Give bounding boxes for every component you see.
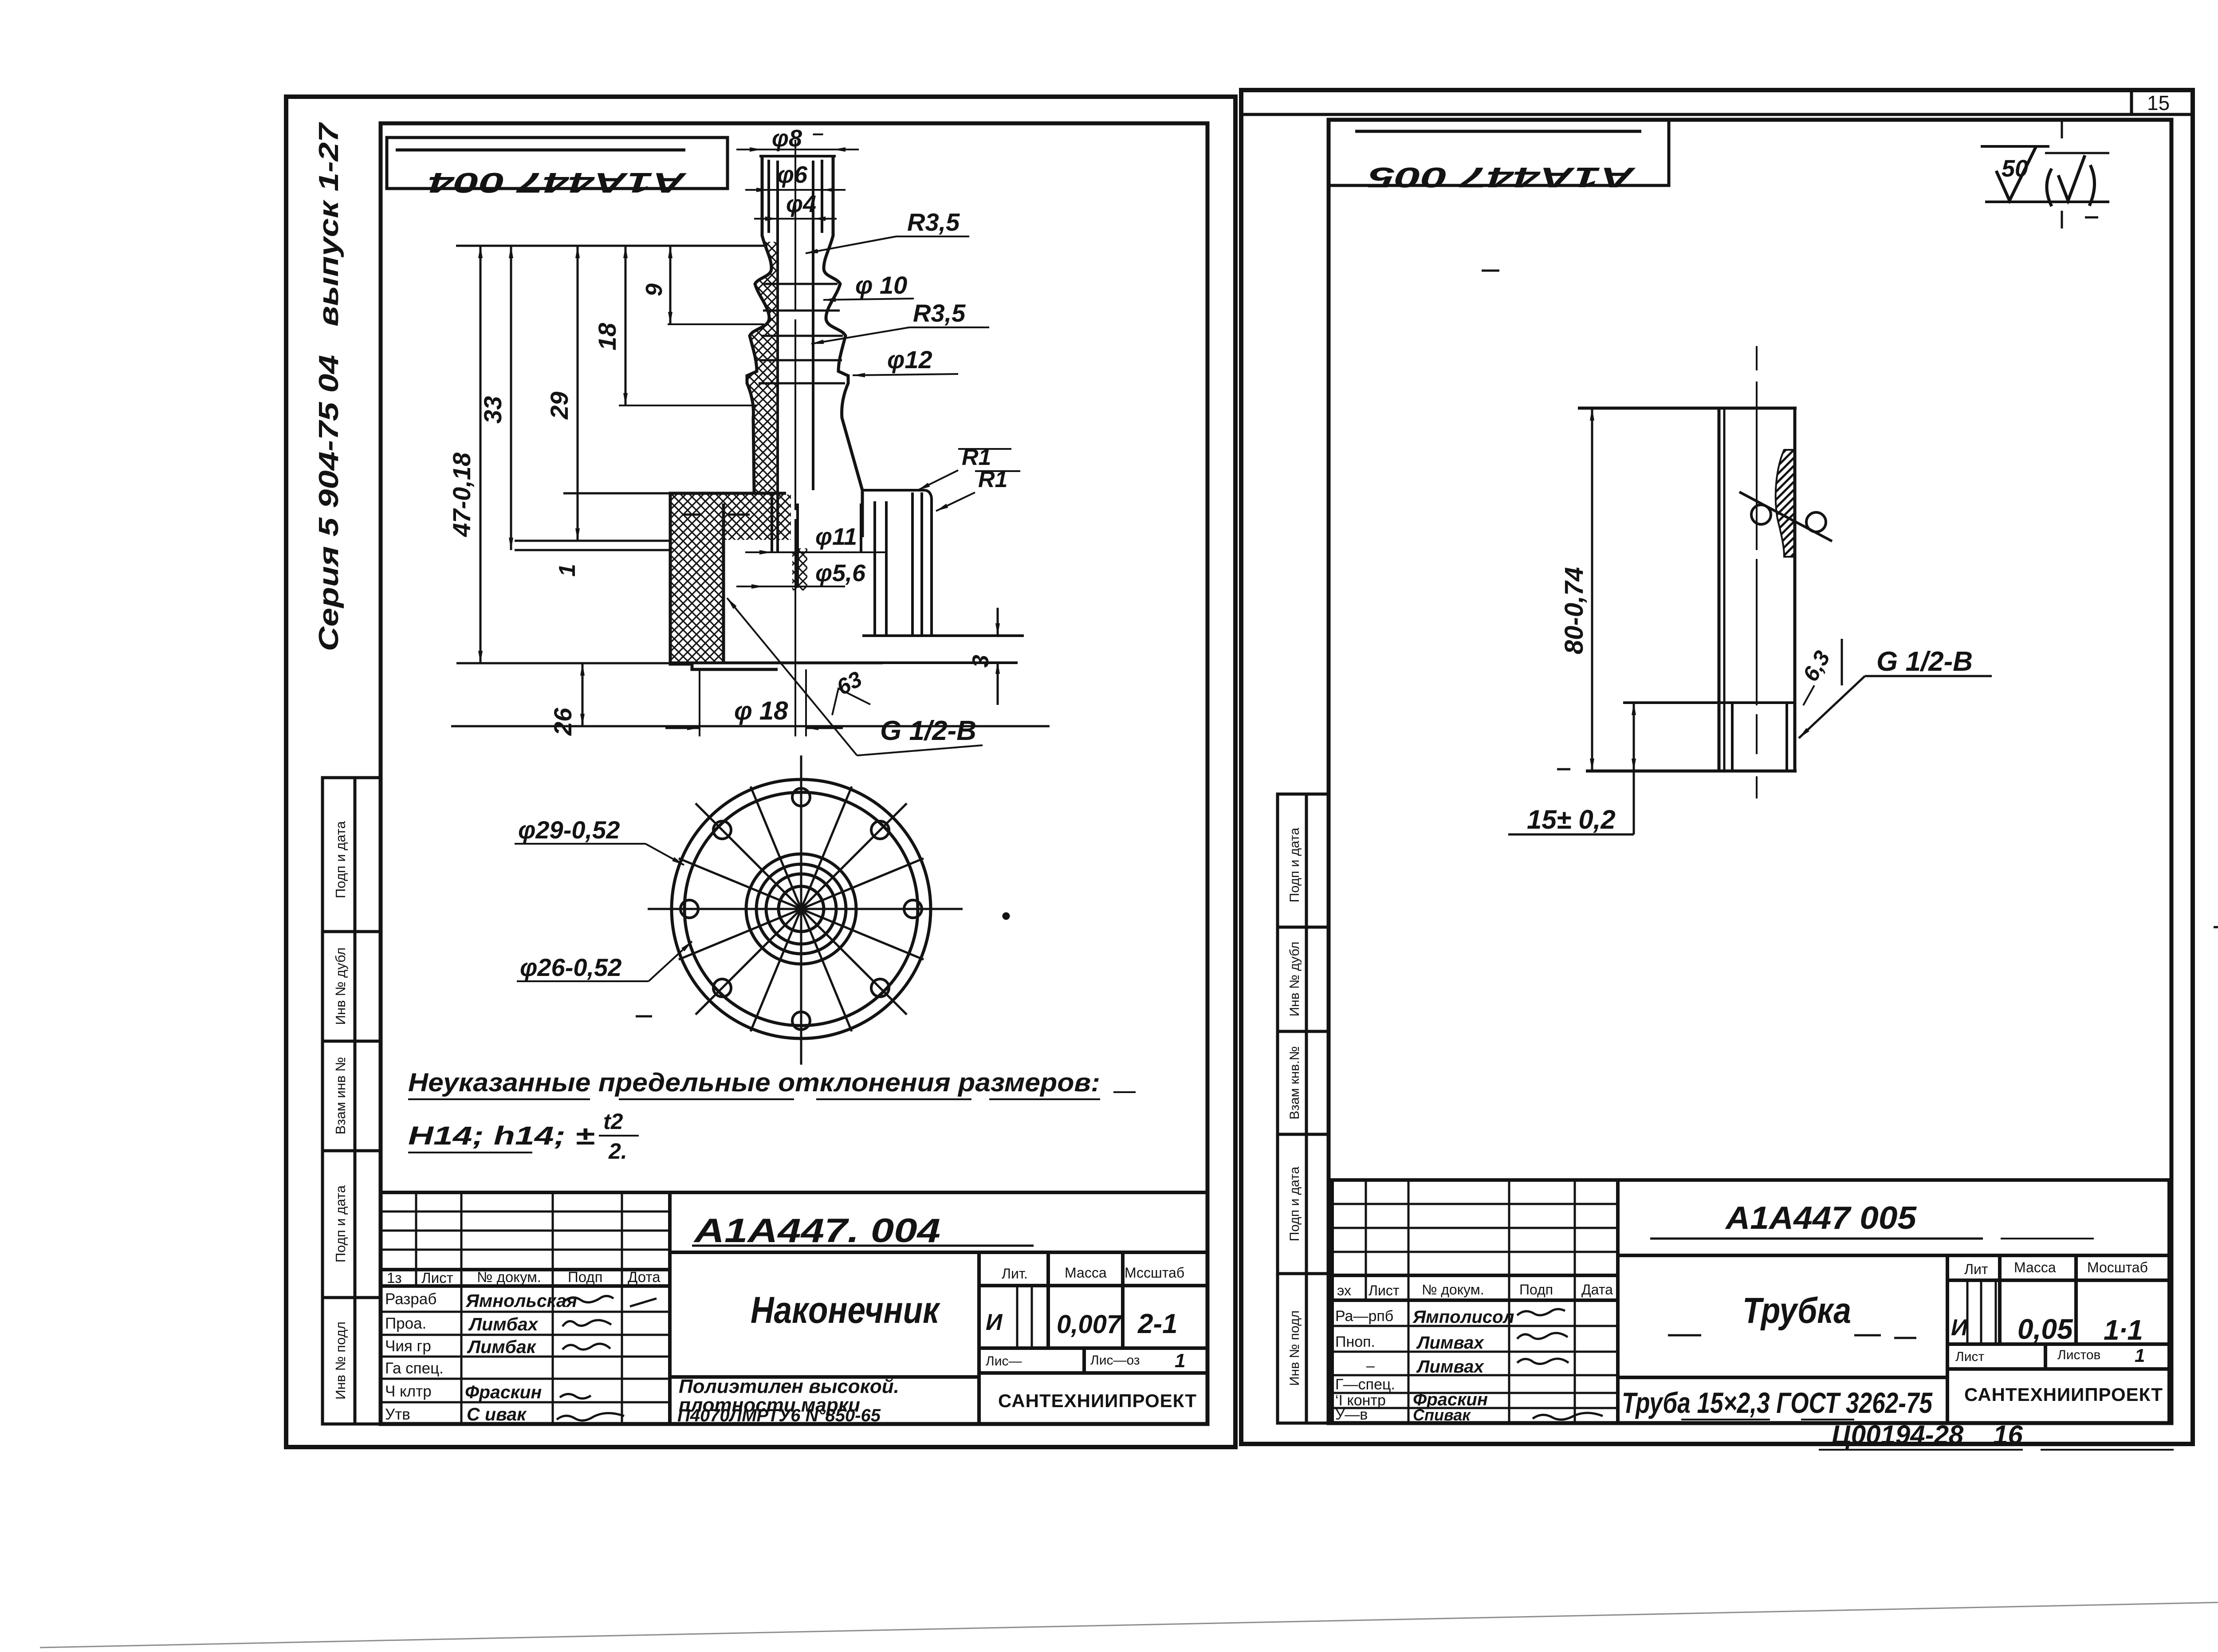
- svg-text:Фраскин: Фраскин: [465, 1382, 542, 1402]
- svg-text:Чия гр: Чия гр: [385, 1337, 431, 1355]
- svg-text:15: 15: [2147, 91, 2170, 114]
- svg-text:φ6: φ6: [777, 161, 808, 188]
- svg-text:15± 0,2: 15± 0,2: [1527, 805, 1616, 834]
- svg-text:Проа.: Проа.: [385, 1315, 426, 1332]
- svg-text:18: 18: [593, 323, 621, 350]
- svg-text:С ивак: С ивак: [467, 1404, 527, 1424]
- svg-text:Лит.: Лит.: [1002, 1266, 1028, 1282]
- svg-text:№ докум.: № докум.: [477, 1269, 541, 1285]
- svg-text:φ12: φ12: [887, 346, 932, 374]
- svg-text:Лис—оз: Лис—оз: [1090, 1353, 1140, 1368]
- svg-text:И: И: [986, 1310, 1003, 1335]
- svg-text:Лимвах: Лимвах: [1416, 1357, 1484, 1377]
- svg-text:Масса: Масса: [1065, 1265, 1107, 1281]
- svg-text:Лит: Лит: [1964, 1261, 1988, 1277]
- svg-text:φ 10: φ 10: [855, 271, 907, 299]
- svg-text:Подп: Подп: [568, 1269, 602, 1285]
- svg-text:0,05: 0,05: [2017, 1313, 2073, 1345]
- svg-text:Лист: Лист: [1955, 1349, 1984, 1364]
- svg-text:Подп и дата: Подп и дата: [1287, 1166, 1302, 1241]
- svg-text:эх: эх: [1337, 1282, 1351, 1298]
- svg-text:Разраб: Разраб: [385, 1290, 437, 1308]
- svg-text:1: 1: [1175, 1350, 1185, 1372]
- svg-text:Ц00194-28 16: Ц00194-28 16: [1832, 1420, 2023, 1450]
- svg-text:Лист: Лист: [421, 1270, 453, 1286]
- svg-text:A1A447. 004: A1A447. 004: [693, 1212, 940, 1250]
- svg-text:47-0,18: 47-0,18: [448, 452, 476, 537]
- svg-text:0,007: 0,007: [1057, 1310, 1122, 1339]
- svg-text:№ докум.: № докум.: [1422, 1282, 1484, 1298]
- svg-text:A1A447 004: A1A447 004: [429, 167, 687, 199]
- svg-text:1∙1: 1∙1: [2104, 1314, 2143, 1346]
- svg-text:Ямнольская: Ямнольская: [465, 1290, 577, 1311]
- svg-text:Мссштаб: Мссштаб: [1125, 1265, 1184, 1281]
- svg-text:Лимбах: Лимбах: [468, 1314, 539, 1334]
- svg-text:G 1/2-B: G 1/2-B: [880, 716, 976, 746]
- svg-text:Подп: Подп: [1519, 1282, 1553, 1298]
- svg-text:Г—спец.: Г—спец.: [1335, 1376, 1395, 1393]
- svg-text:2.: 2.: [608, 1139, 627, 1164]
- svg-text:И: И: [1951, 1315, 1968, 1341]
- svg-text:R3,5: R3,5: [907, 208, 960, 236]
- svg-text:t2: t2: [603, 1109, 623, 1134]
- svg-text:Утв: Утв: [385, 1406, 410, 1423]
- svg-text:Наконечник: Наконечник: [751, 1289, 940, 1331]
- svg-text:26: 26: [549, 708, 577, 736]
- svg-text:САНТЕХНИИПРОЕКТ: САНТЕХНИИПРОЕКТ: [1964, 1384, 2163, 1405]
- svg-text:Ч клтр: Ч клтр: [385, 1383, 432, 1400]
- svg-text:П4070ЛМРТУ6 N°850-65: П4070ЛМРТУ6 N°850-65: [677, 1406, 881, 1425]
- svg-text:G 1/2-B: G 1/2-B: [1876, 646, 1973, 677]
- svg-text:φ29-0,52: φ29-0,52: [518, 816, 620, 844]
- svg-text:R3,5: R3,5: [913, 299, 966, 327]
- svg-text:33: 33: [479, 396, 507, 424]
- svg-text:Труба 15×2,3 ГОСТ 3262-75: Труба 15×2,3 ГОСТ 3262-75: [1622, 1386, 1933, 1419]
- svg-text:80-0,74: 80-0,74: [1560, 567, 1589, 654]
- svg-text:Дата: Дата: [1581, 1282, 1613, 1298]
- svg-text:Га спец.: Га спец.: [385, 1360, 444, 1377]
- svg-text:φ 18: φ 18: [734, 696, 788, 725]
- svg-text:Подп и дата: Подп и дата: [1287, 827, 1302, 902]
- svg-text:Лимвах: Лимвах: [1416, 1333, 1484, 1353]
- svg-text:1: 1: [554, 564, 580, 577]
- svg-text:Листов: Листов: [2057, 1348, 2100, 1362]
- svg-text:Подп и дата: Подп и дата: [333, 1185, 348, 1263]
- svg-text:H14; h14; ±: H14; h14; ±: [408, 1121, 594, 1150]
- svg-text:Масса: Масса: [2014, 1259, 2056, 1275]
- svg-text:Трубка: Трубка: [1742, 1290, 1851, 1331]
- svg-text:Инв № дубл: Инв № дубл: [1287, 941, 1302, 1016]
- svg-text:Лис—: Лис—: [986, 1354, 1022, 1369]
- svg-text:φ5,6: φ5,6: [815, 560, 866, 586]
- svg-text:Мосштаб: Мосштаб: [2087, 1259, 2148, 1275]
- svg-text:Пноп.: Пноп.: [1335, 1333, 1375, 1350]
- svg-text:φ11: φ11: [815, 523, 857, 550]
- svg-text:Подп и дата: Подп и дата: [333, 821, 348, 898]
- svg-text:2-1: 2-1: [1137, 1309, 1178, 1339]
- svg-text:Инв № дубл: Инв № дубл: [333, 948, 348, 1025]
- svg-text:–: –: [1366, 1357, 1375, 1374]
- svg-text:29: 29: [545, 392, 573, 420]
- svg-text:Ра—рпб: Ра—рпб: [1335, 1308, 1393, 1325]
- svg-text:A1A447 005: A1A447 005: [1368, 161, 1636, 193]
- svg-text:3: 3: [968, 655, 994, 668]
- svg-text:φ26-0,52: φ26-0,52: [520, 953, 621, 981]
- svg-text:Взам кнв.№: Взам кнв.№: [1287, 1046, 1302, 1120]
- svg-text:Неуказанные предельные откло: Неуказанные предельные отклонения размер…: [408, 1068, 1100, 1097]
- svg-text:Дота: Дота: [628, 1269, 661, 1285]
- svg-text:1з: 1з: [387, 1270, 401, 1286]
- svg-text:φ4: φ4: [786, 191, 816, 217]
- svg-text:9: 9: [641, 283, 667, 296]
- svg-text:У—в: У—в: [1335, 1406, 1368, 1423]
- svg-text:Лист: Лист: [1369, 1282, 1400, 1298]
- svg-text:САНТЕХНИИПРОЕКТ: САНТЕХНИИПРОЕКТ: [998, 1390, 1197, 1411]
- svg-text:Инв № подл: Инв № подл: [333, 1322, 348, 1400]
- svg-text:1: 1: [2135, 1345, 2145, 1366]
- svg-text:A1A447 005: A1A447 005: [1725, 1200, 1917, 1236]
- svg-text:Ямполисол: Ямполисол: [1412, 1307, 1514, 1327]
- svg-text:Спивак: Спивак: [1413, 1406, 1471, 1424]
- svg-text:Серия 5 904-75 04 выпуск 1-2: Серия 5 904-75 04 выпуск 1-27: [314, 122, 344, 651]
- svg-text:Инв № подл: Инв № подл: [1287, 1310, 1302, 1386]
- svg-text:Взам инв №: Взам инв №: [333, 1057, 348, 1135]
- svg-text:φ8 ⁻: φ8 ⁻: [772, 125, 824, 152]
- svg-text:Лимбак: Лимбак: [467, 1337, 537, 1357]
